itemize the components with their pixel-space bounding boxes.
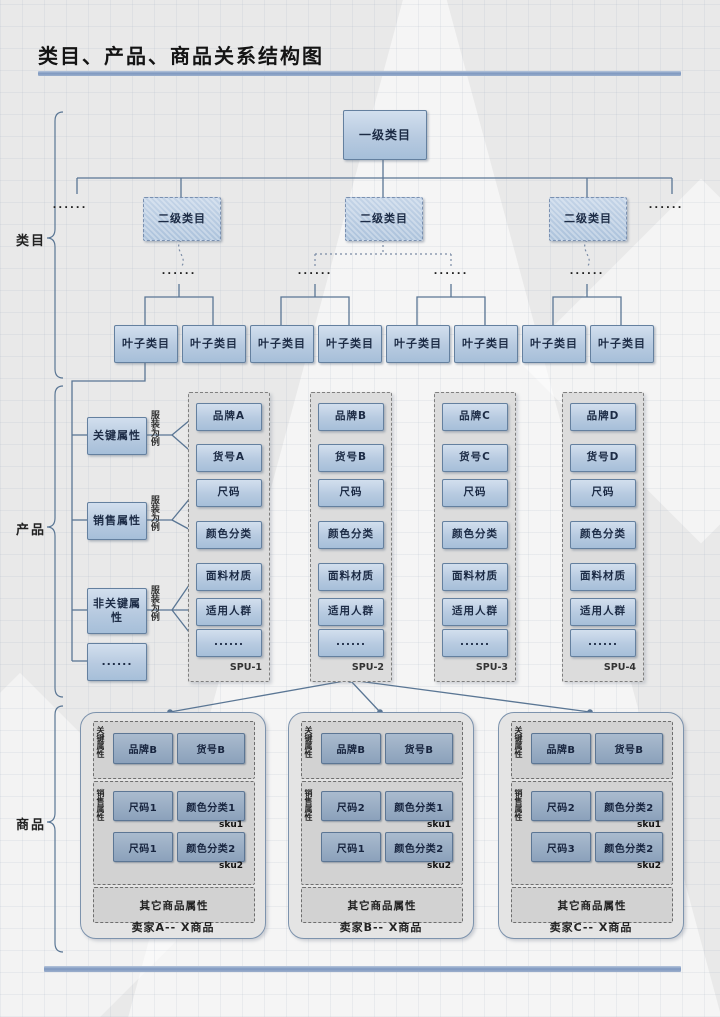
spu4-item-no: 货号D <box>570 444 636 472</box>
seller-a-sku1-color: 颜色分类1 <box>177 791 245 821</box>
spu3-more: ...... <box>442 629 508 657</box>
spu3-audience: 适用人群 <box>442 598 508 626</box>
seller-a-brand: 品牌B <box>113 733 173 764</box>
spu1-size: 尺码 <box>196 479 262 507</box>
seller-a-sku2-size: 尺码1 <box>113 832 173 862</box>
seller-a-item-no: 货号B <box>177 733 245 764</box>
spu2-name: SPU-2 <box>352 662 384 673</box>
spu1-color: 颜色分类 <box>196 521 262 549</box>
seller-a-sales-attr-label: 销售属性 <box>96 789 104 821</box>
section-label-product: 产品 <box>16 519 46 538</box>
ellipsis-sub-3: ...... <box>431 266 471 278</box>
seller-a-card: 关键属性 品牌B 货号B 销售属性 尺码1 颜色分类1 sku1 尺码1 颜色分… <box>80 712 266 939</box>
seller-b-sales-attr-label: 销售属性 <box>304 789 312 821</box>
ellipsis-right: ...... <box>646 200 686 212</box>
note-clothing-example-2: 服装为例 <box>148 495 158 531</box>
node-leaf-category-5: 叶子类目 <box>386 325 450 363</box>
ellipsis-sub-2: ...... <box>295 266 335 278</box>
note-clothing-example-3: 服装为例 <box>148 585 158 621</box>
spu3-color: 颜色分类 <box>442 521 508 549</box>
spu-column-3: 品牌C 货号C 尺码 颜色分类 面料材质 适用人群 ...... SPU-3 <box>434 392 516 682</box>
node-leaf-category-4: 叶子类目 <box>318 325 382 363</box>
seller-c-sku2-color: 颜色分类2 <box>595 832 663 862</box>
ellipsis-left: ...... <box>50 200 90 212</box>
spu2-item-no: 货号B <box>318 444 384 472</box>
spu2-color: 颜色分类 <box>318 521 384 549</box>
seller-a-key-attr-label: 关键属性 <box>96 726 104 758</box>
seller-c-card: 关键属性 品牌B 货号B 销售属性 尺码2 颜色分类2 sku1 尺码3 颜色分… <box>498 712 684 939</box>
title-underline-bar <box>38 71 681 76</box>
node-leaf-category-8: 叶子类目 <box>590 325 654 363</box>
seller-b-sku1-size: 尺码2 <box>321 791 381 821</box>
seller-a-name: 卖家A-- X商品 <box>81 919 265 935</box>
spu3-fabric: 面料材质 <box>442 563 508 591</box>
seller-b-card: 关键属性 品牌B 货号B 销售属性 尺码2 颜色分类1 sku1 尺码1 颜色分… <box>288 712 474 939</box>
seller-b-key-attr-label: 关键属性 <box>304 726 312 758</box>
ellipsis-sub-1: ...... <box>159 266 199 278</box>
node-nonkey-attributes: 非关键属性 <box>87 588 147 634</box>
spu3-name: SPU-3 <box>476 662 508 673</box>
spu2-size: 尺码 <box>318 479 384 507</box>
note-clothing-example-1: 服装为例 <box>148 410 158 446</box>
spu1-brand: 品牌A <box>196 403 262 431</box>
seller-b-sku2-tag: sku2 <box>385 861 451 871</box>
seller-a-other-attrs: 其它商品属性 <box>93 887 255 923</box>
node-sales-attributes: 销售属性 <box>87 502 147 540</box>
spu1-fabric: 面料材质 <box>196 563 262 591</box>
spu1-item-no: 货号A <box>196 444 262 472</box>
seller-a-sku2-color: 颜色分类2 <box>177 832 245 862</box>
diagram-page: 类目、产品、商品关系结构图 类目 产品 商品 一级类目 二级类目 二级类目 二级… <box>0 0 720 1017</box>
seller-b-sku1-tag: sku1 <box>385 820 451 830</box>
spu-column-2: 品牌B 货号B 尺码 颜色分类 面料材质 适用人群 ...... SPU-2 <box>310 392 392 682</box>
spu4-brand: 品牌D <box>570 403 636 431</box>
seller-b-sku2-color: 颜色分类2 <box>385 832 453 862</box>
spu4-audience: 适用人群 <box>570 598 636 626</box>
spu3-item-no: 货号C <box>442 444 508 472</box>
spu1-more: ...... <box>196 629 262 657</box>
node-more-attributes: ...... <box>87 643 147 681</box>
spu3-brand: 品牌C <box>442 403 508 431</box>
spu2-brand: 品牌B <box>318 403 384 431</box>
node-leaf-category-6: 叶子类目 <box>454 325 518 363</box>
node-leaf-category-2: 叶子类目 <box>182 325 246 363</box>
seller-c-sku1-tag: sku1 <box>595 820 661 830</box>
seller-c-item-no: 货号B <box>595 733 663 764</box>
seller-c-key-attr-label: 关键属性 <box>514 726 522 758</box>
seller-c-brand: 品牌B <box>531 733 591 764</box>
node-root-category: 一级类目 <box>343 110 427 160</box>
spu4-more: ...... <box>570 629 636 657</box>
seller-a-sku1-size: 尺码1 <box>113 791 173 821</box>
seller-b-item-no: 货号B <box>385 733 453 764</box>
node-leaf-category-7: 叶子类目 <box>522 325 586 363</box>
spu4-name: SPU-4 <box>604 662 636 673</box>
spu4-fabric: 面料材质 <box>570 563 636 591</box>
seller-b-other-attrs: 其它商品属性 <box>301 887 463 923</box>
page-title: 类目、产品、商品关系结构图 <box>38 40 324 69</box>
spu1-name: SPU-1 <box>230 662 262 673</box>
node-level2-category-3: 二级类目 <box>549 197 627 241</box>
seller-b-name: 卖家B-- X商品 <box>289 919 473 935</box>
spu-column-4: 品牌D 货号D 尺码 颜色分类 面料材质 适用人群 ...... SPU-4 <box>562 392 644 682</box>
spu4-size: 尺码 <box>570 479 636 507</box>
node-level2-category-2: 二级类目 <box>345 197 423 241</box>
seller-c-sku2-size: 尺码3 <box>531 832 591 862</box>
seller-c-sku2-tag: sku2 <box>595 861 661 871</box>
node-key-attributes: 关键属性 <box>87 417 147 455</box>
node-leaf-category-3: 叶子类目 <box>250 325 314 363</box>
seller-b-brand: 品牌B <box>321 733 381 764</box>
seller-b-sku1-color: 颜色分类1 <box>385 791 453 821</box>
seller-c-name: 卖家C-- X商品 <box>499 919 683 935</box>
footer-bar <box>44 966 681 972</box>
spu-column-1: 品牌A 货号A 尺码 颜色分类 面料材质 适用人群 ...... SPU-1 <box>188 392 270 682</box>
spu2-fabric: 面料材质 <box>318 563 384 591</box>
seller-c-sales-attr-label: 销售属性 <box>514 789 522 821</box>
node-leaf-category-1: 叶子类目 <box>114 325 178 363</box>
section-label-commodity: 商品 <box>16 814 46 833</box>
node-level2-category-1: 二级类目 <box>143 197 221 241</box>
seller-a-sku2-tag: sku2 <box>177 861 243 871</box>
spu1-audience: 适用人群 <box>196 598 262 626</box>
spu3-size: 尺码 <box>442 479 508 507</box>
seller-c-sku1-color: 颜色分类2 <box>595 791 663 821</box>
ellipsis-sub-4: ...... <box>567 266 607 278</box>
seller-c-other-attrs: 其它商品属性 <box>511 887 673 923</box>
section-label-category: 类目 <box>16 230 46 249</box>
seller-b-sku2-size: 尺码1 <box>321 832 381 862</box>
spu2-audience: 适用人群 <box>318 598 384 626</box>
seller-a-sku1-tag: sku1 <box>177 820 243 830</box>
spu4-color: 颜色分类 <box>570 521 636 549</box>
seller-c-sku1-size: 尺码2 <box>531 791 591 821</box>
spu2-more: ...... <box>318 629 384 657</box>
